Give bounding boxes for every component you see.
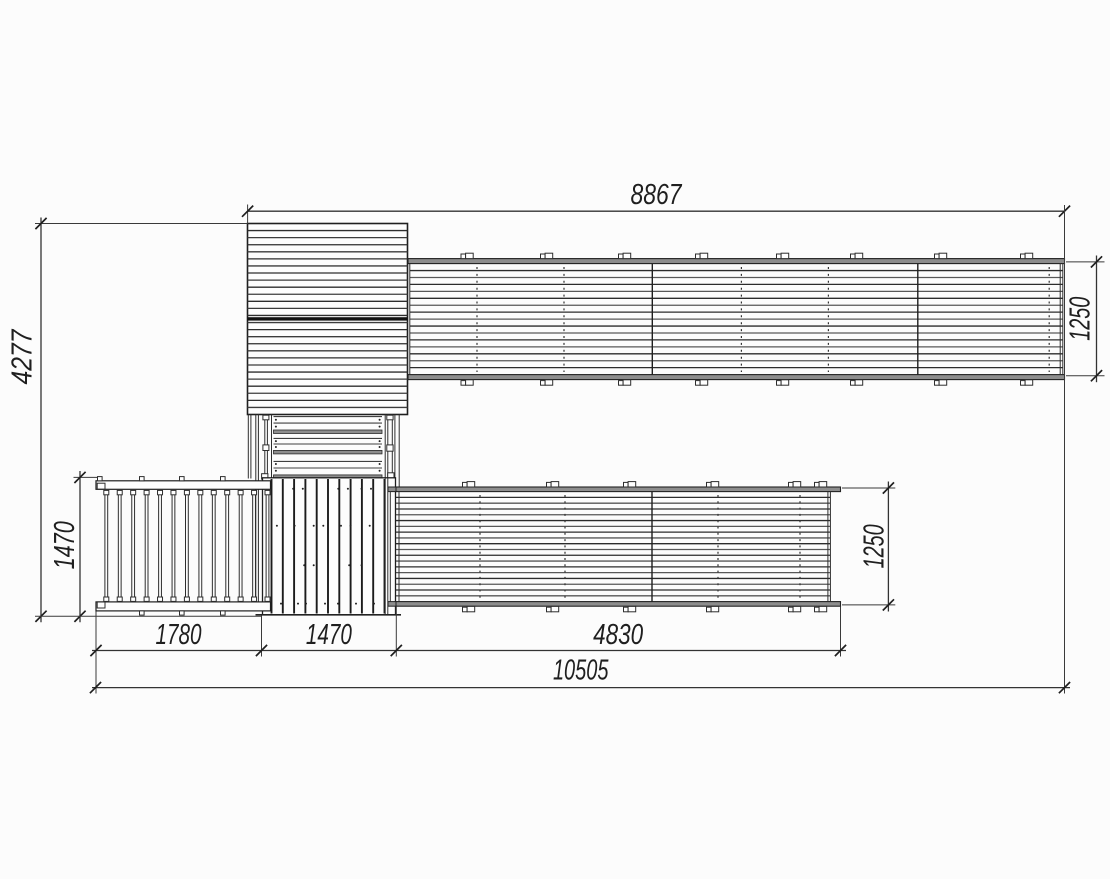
svg-text:4830: 4830 bbox=[593, 619, 643, 651]
svg-text:10505: 10505 bbox=[553, 654, 609, 686]
svg-text:8867: 8867 bbox=[631, 179, 683, 211]
svg-text:1780: 1780 bbox=[156, 619, 202, 651]
svg-text:1470: 1470 bbox=[306, 619, 352, 651]
svg-text:1250: 1250 bbox=[1065, 297, 1097, 341]
svg-text:4277: 4277 bbox=[7, 329, 39, 385]
svg-text:1470: 1470 bbox=[49, 521, 81, 569]
svg-text:1250: 1250 bbox=[859, 524, 891, 568]
